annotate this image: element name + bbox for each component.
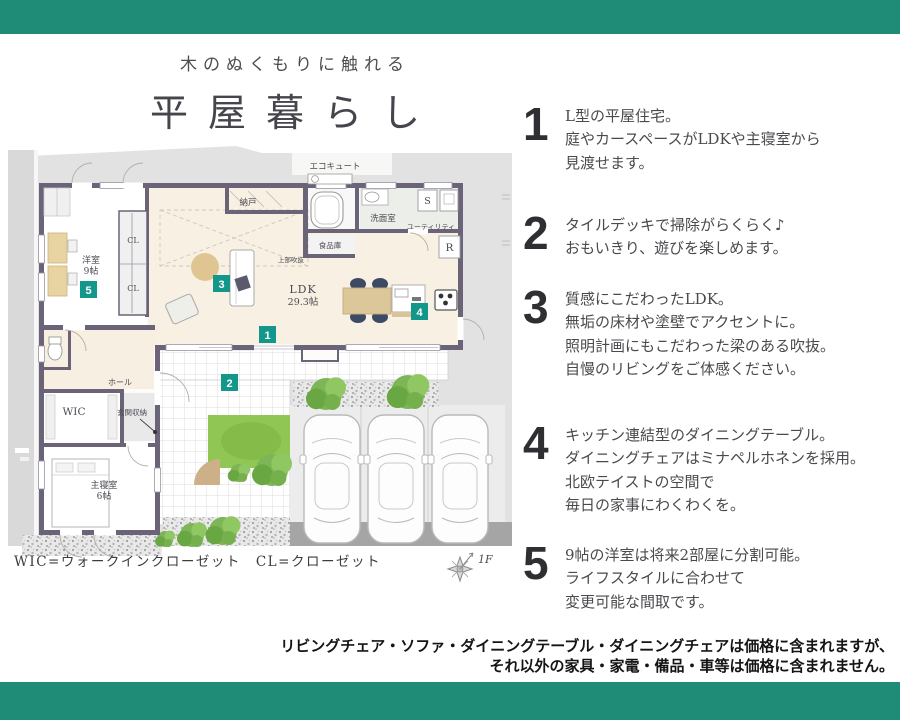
svg-text:4: 4 (416, 307, 423, 319)
plan-marker-5: 5 (80, 281, 97, 298)
room-label-utility: ユーティリティ (407, 223, 455, 231)
feature-text: キッチン連結型のダイニングテーブル。 ダイニングチェアはミナペルホネンを採用。 … (559, 422, 865, 517)
feature-item-2: 2 タイルデッキで掃除がらくらく♪ おもいきり、遊びを楽しめます。 (523, 212, 897, 261)
room-label-cl-upper: CL (127, 236, 139, 245)
plan-marker-1: 1 (259, 326, 276, 343)
flyer-page: 木のぬくもりに触れる 平屋暮らし (0, 0, 900, 720)
room-label-senmenshitsu: 洗面室 (370, 213, 396, 224)
desk (48, 266, 67, 296)
floor-tag: 1F (478, 553, 493, 566)
compass-rose-icon (448, 553, 473, 581)
compass: 1F (440, 549, 496, 595)
svg-text:2: 2 (226, 378, 232, 390)
feature-text: 9帖の洋室は将来2部屋に分割可能。 ライフスタイルに合わせて 変更可能な間取です… (559, 542, 809, 614)
feature-item-3: 3 質感にこだわったLDK。 無垢の床材や塗壁でアクセントに。 照明計画にもこだ… (523, 286, 897, 381)
room-label-hall: ホール (108, 378, 132, 387)
feature-item-4: 4 キッチン連結型のダイニングテーブル。 ダイニングチェアはミナペルホネンを採用… (523, 422, 897, 517)
room-label-wic: WIC (63, 406, 86, 418)
room-label-ecocute: エコキュート (309, 162, 360, 172)
room-label-yoshitsu: 洋室 (82, 254, 100, 266)
feature-item-5: 5 9帖の洋室は将来2部屋に分割可能。 ライフスタイルに合わせて 変更可能な間取… (523, 542, 897, 614)
feature-number: 5 (523, 542, 559, 614)
room-label-nando: 納戸 (239, 197, 256, 208)
car-2 (364, 415, 428, 543)
room-label-genkan-storage: 玄関収納 (117, 407, 147, 417)
room-label-shushinshitsu-size: 6帖 (97, 490, 112, 502)
dining-table (343, 288, 391, 314)
room-label-yoshitsu-size: 9帖 (84, 265, 99, 277)
price-disclaimer: リビングチェア・ソファ・ダイニングテーブル・ダイニングチェアは価格に含まれますが… (114, 637, 894, 678)
label-fridge-r: R (446, 242, 455, 254)
room-label-pantry: 食品庫 (319, 240, 342, 250)
car-1 (300, 415, 364, 543)
car-3 (428, 415, 492, 543)
plan-marker-4: 4 (411, 303, 428, 320)
feature-text: L型の平屋住宅。 庭やカースペースがLDKや主寝室から 見渡せます。 (559, 103, 821, 175)
subtitle: 木のぬくもりに触れる (60, 50, 530, 75)
svg-text:1: 1 (264, 330, 270, 342)
svg-text:5: 5 (85, 285, 91, 297)
feature-number: 2 (523, 212, 559, 261)
room-label-void: 上部吹抜 (278, 255, 305, 264)
desk (48, 233, 67, 263)
room-label-ldk-size: 29.3帖 (288, 296, 319, 308)
feature-text: 質感にこだわったLDK。 無垢の床材や塗壁でアクセントに。 照明計画にもこだわっ… (559, 286, 835, 381)
feature-number: 4 (523, 422, 559, 517)
plan-marker-3: 3 (213, 275, 230, 292)
feature-number: 1 (523, 103, 559, 175)
plan-legend: WIC=ウォークインクローゼット CL=クローゼット (14, 550, 444, 570)
bathtub (311, 192, 343, 228)
floor-plan-drawing: エコキュート 納戸 洗面室 ユーティリティ 食品庫 LDK 29.3帖 上部吹抜… (8, 143, 512, 568)
stove (435, 290, 457, 310)
room-label-shushinshitsu: 主寝室 (90, 479, 117, 491)
room-label-cl-lower: CL (127, 284, 139, 293)
room-label-ldk: LDK (289, 283, 316, 296)
floor-plan: エコキュート 納戸 洗面室 ユーティリティ 食品庫 LDK 29.3帖 上部吹抜… (8, 143, 512, 568)
plan-marker-2: 2 (221, 374, 238, 391)
feature-item-1: 1 L型の平屋住宅。 庭やカースペースがLDKや主寝室から 見渡せます。 (523, 103, 897, 175)
parked-cars (300, 415, 492, 543)
label-washer-s: S (424, 196, 431, 207)
top-teal-band (0, 0, 900, 34)
bottom-teal-band (0, 682, 900, 720)
page-title: 平屋暮らし (60, 82, 530, 137)
svg-text:3: 3 (218, 279, 224, 291)
feature-text: タイルデッキで掃除がらくらく♪ おもいきり、遊びを楽しめます。 (559, 212, 788, 261)
feature-number: 3 (523, 286, 559, 381)
